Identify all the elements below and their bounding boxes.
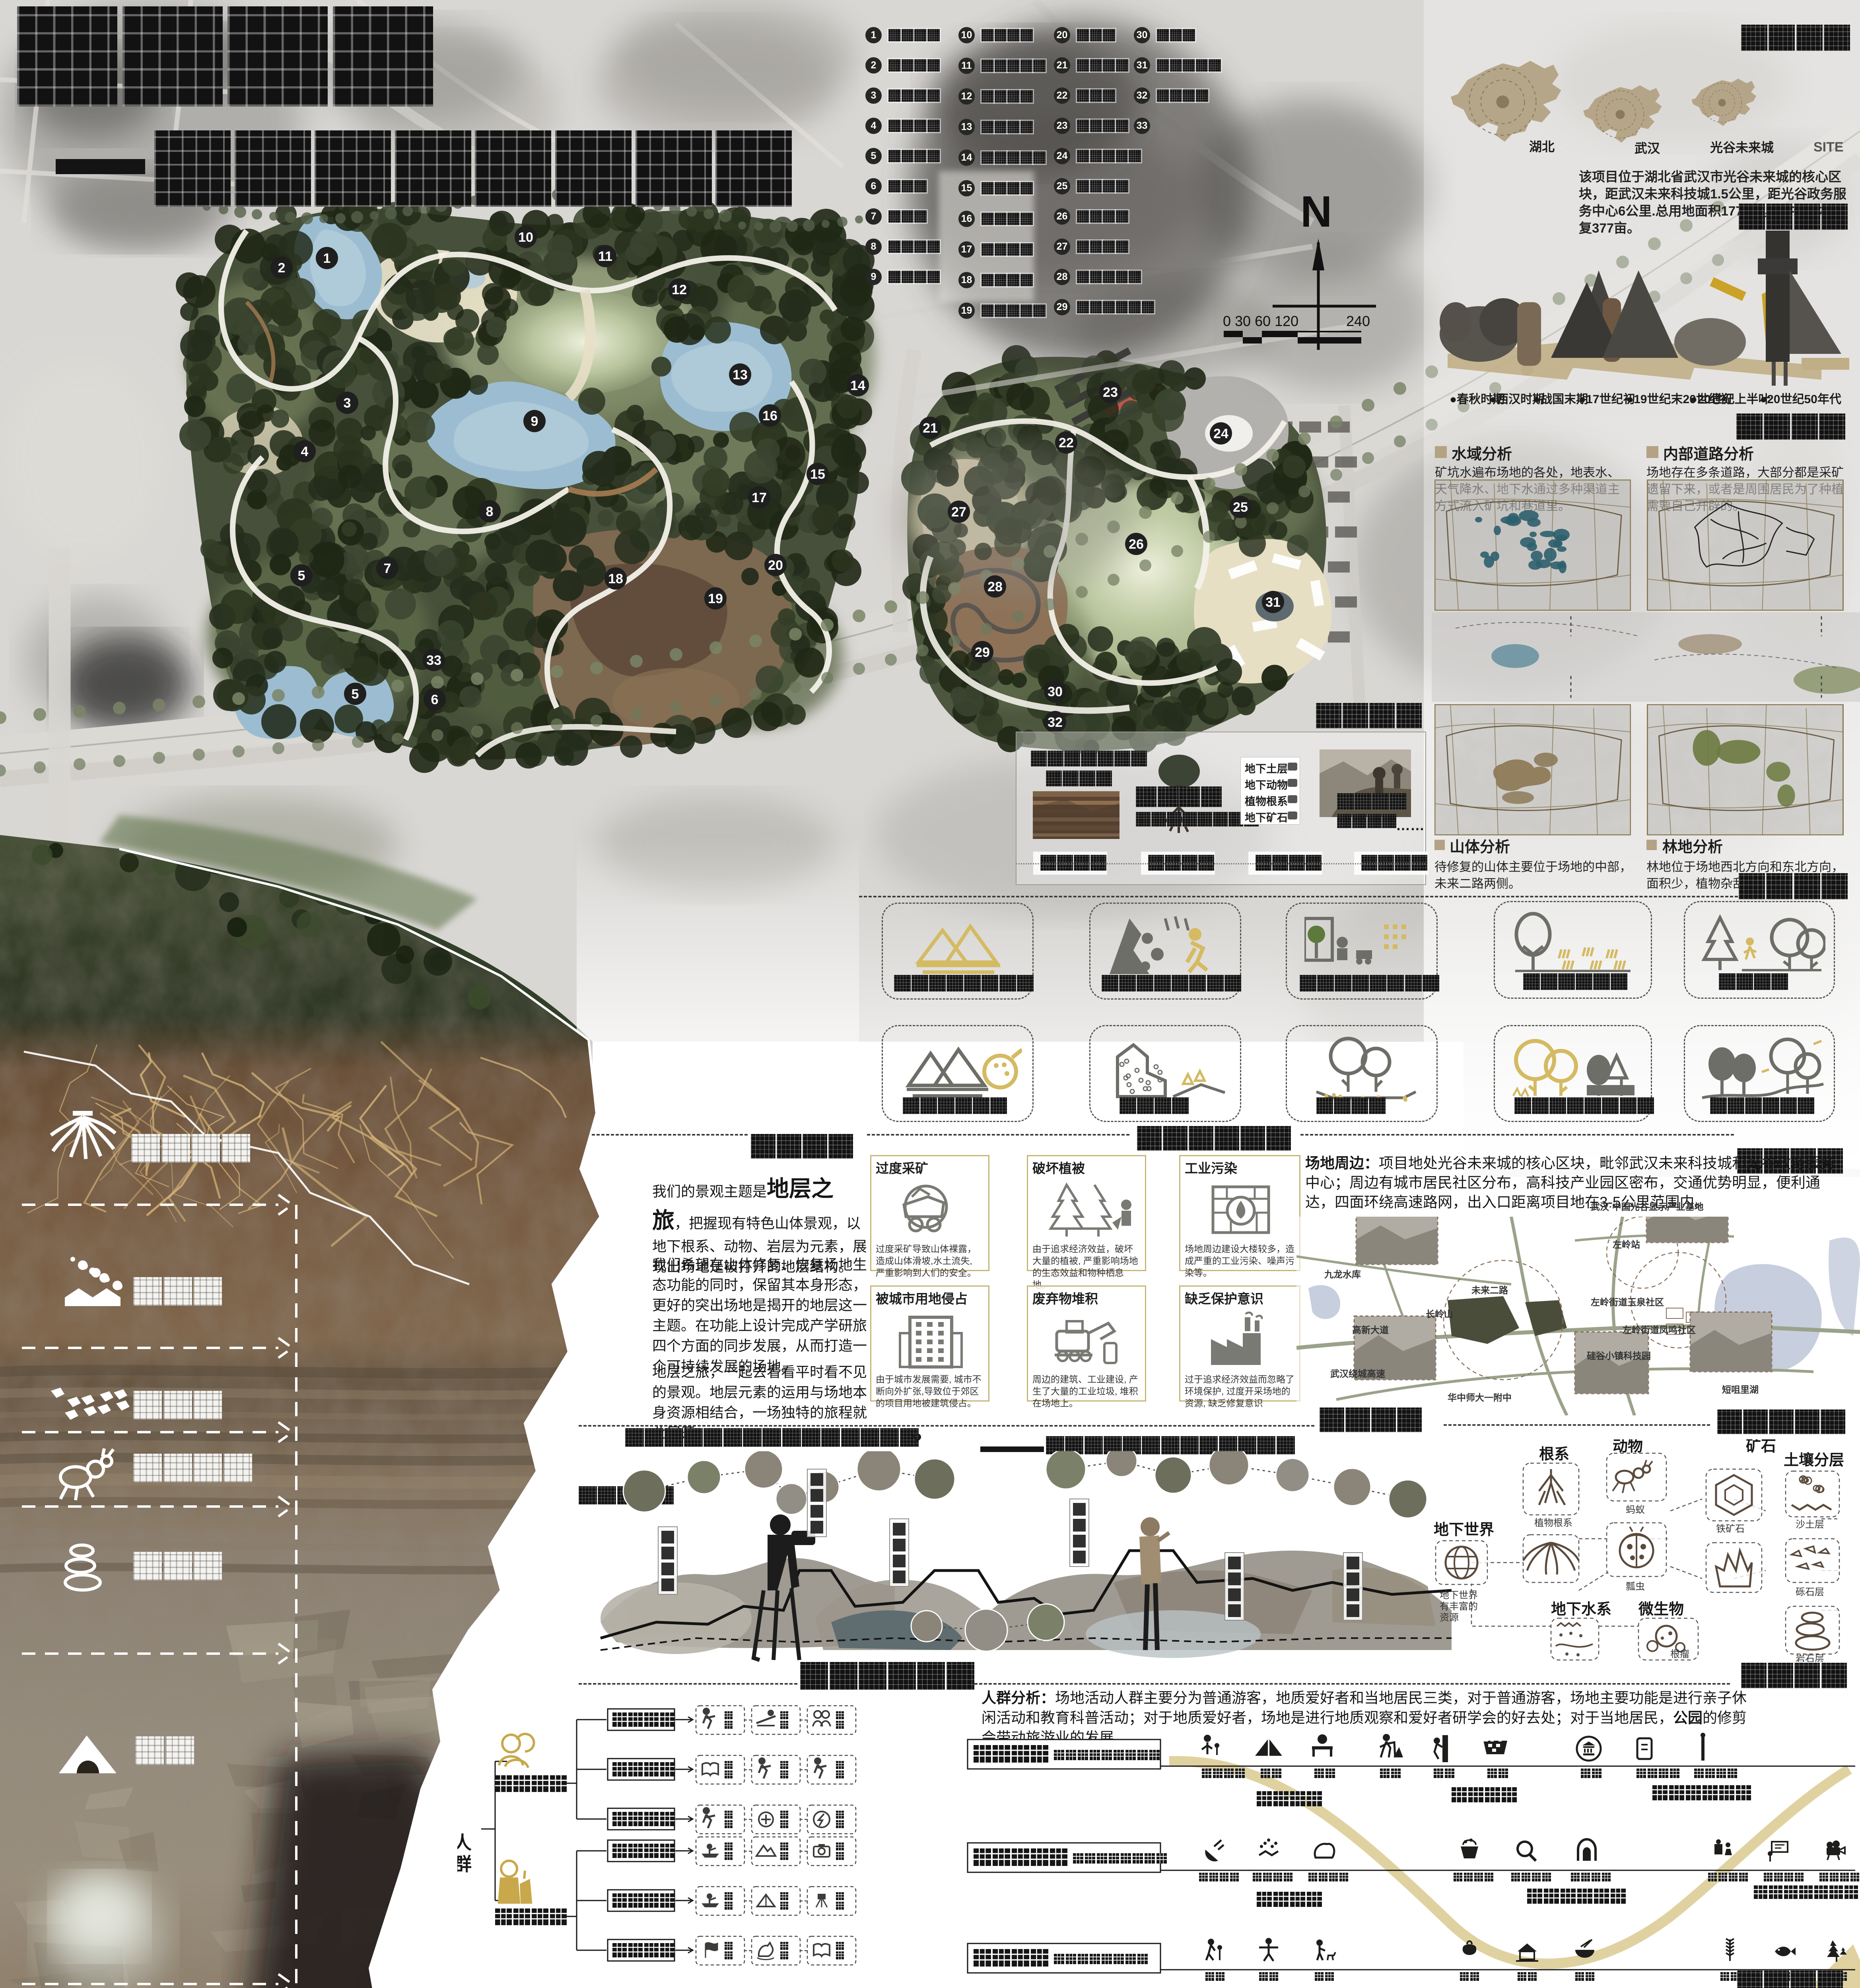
svg-text:瓢虫: 瓢虫 xyxy=(1626,1581,1645,1592)
svg-text:17: 17 xyxy=(752,490,767,505)
svg-text:根系: 根系 xyxy=(1539,1446,1569,1463)
svg-text:4: 4 xyxy=(301,444,309,459)
svg-text:资源: 资源 xyxy=(1440,1612,1459,1623)
svg-text:21: 21 xyxy=(923,421,938,436)
svg-text:3: 3 xyxy=(344,396,351,411)
svg-text:25: 25 xyxy=(1233,500,1248,515)
svg-text:微生物: 微生物 xyxy=(1638,1601,1684,1618)
svg-text:沙土层: 沙土层 xyxy=(1796,1519,1824,1530)
svg-text:240: 240 xyxy=(1346,314,1370,329)
svg-text:18: 18 xyxy=(608,571,623,586)
svg-text:动物: 动物 xyxy=(1613,1439,1643,1455)
svg-text:岩石层: 岩石层 xyxy=(1796,1654,1824,1662)
svg-text:土壤分层: 土壤分层 xyxy=(1784,1452,1844,1469)
svg-text:1: 1 xyxy=(323,251,331,266)
svg-text:5: 5 xyxy=(352,687,359,702)
svg-text:砾石层: 砾石层 xyxy=(1796,1587,1824,1598)
svg-text:31: 31 xyxy=(1265,595,1281,610)
svg-text:有丰富的: 有丰富的 xyxy=(1440,1601,1478,1612)
svg-text:5: 5 xyxy=(298,568,305,583)
svg-text:0 30 60 120: 0 30 60 120 xyxy=(1223,314,1298,329)
svg-text:铁矿石: 铁矿石 xyxy=(1716,1524,1745,1534)
svg-text:蚂蚁: 蚂蚁 xyxy=(1626,1505,1645,1515)
svg-text:22: 22 xyxy=(1059,435,1074,450)
svg-text:16: 16 xyxy=(762,408,777,423)
svg-text:23: 23 xyxy=(1103,385,1118,400)
svg-text:20: 20 xyxy=(768,558,783,573)
svg-text:植物根系: 植物根系 xyxy=(1534,1518,1572,1528)
svg-text:28: 28 xyxy=(987,579,1003,594)
svg-text:矿石: 矿石 xyxy=(1746,1439,1776,1455)
svg-text:根瘤: 根瘤 xyxy=(1670,1649,1689,1660)
svg-text:19: 19 xyxy=(708,591,723,606)
svg-text:26: 26 xyxy=(1129,537,1144,552)
svg-text:33: 33 xyxy=(426,653,441,668)
svg-text:12: 12 xyxy=(672,282,687,297)
svg-text:N: N xyxy=(1300,191,1332,236)
svg-text:地下水系: 地下水系 xyxy=(1551,1601,1611,1618)
svg-text:地下世界: 地下世界 xyxy=(1440,1590,1478,1601)
svg-text:29: 29 xyxy=(975,645,990,660)
svg-text:13: 13 xyxy=(733,367,748,382)
svg-text:11: 11 xyxy=(598,249,612,264)
svg-text:15: 15 xyxy=(810,467,825,482)
svg-text:8: 8 xyxy=(486,504,494,519)
svg-text:14: 14 xyxy=(850,378,865,393)
svg-text:2: 2 xyxy=(278,260,286,276)
svg-text:24: 24 xyxy=(1213,426,1228,441)
svg-text:地下世界: 地下世界 xyxy=(1434,1522,1494,1538)
svg-text:7: 7 xyxy=(384,561,391,576)
svg-text:27: 27 xyxy=(951,505,966,520)
svg-text:9: 9 xyxy=(531,414,538,429)
svg-text:6: 6 xyxy=(431,692,439,707)
svg-text:30: 30 xyxy=(1048,684,1063,699)
svg-text:32: 32 xyxy=(1048,715,1063,730)
svg-text:10: 10 xyxy=(518,230,533,245)
